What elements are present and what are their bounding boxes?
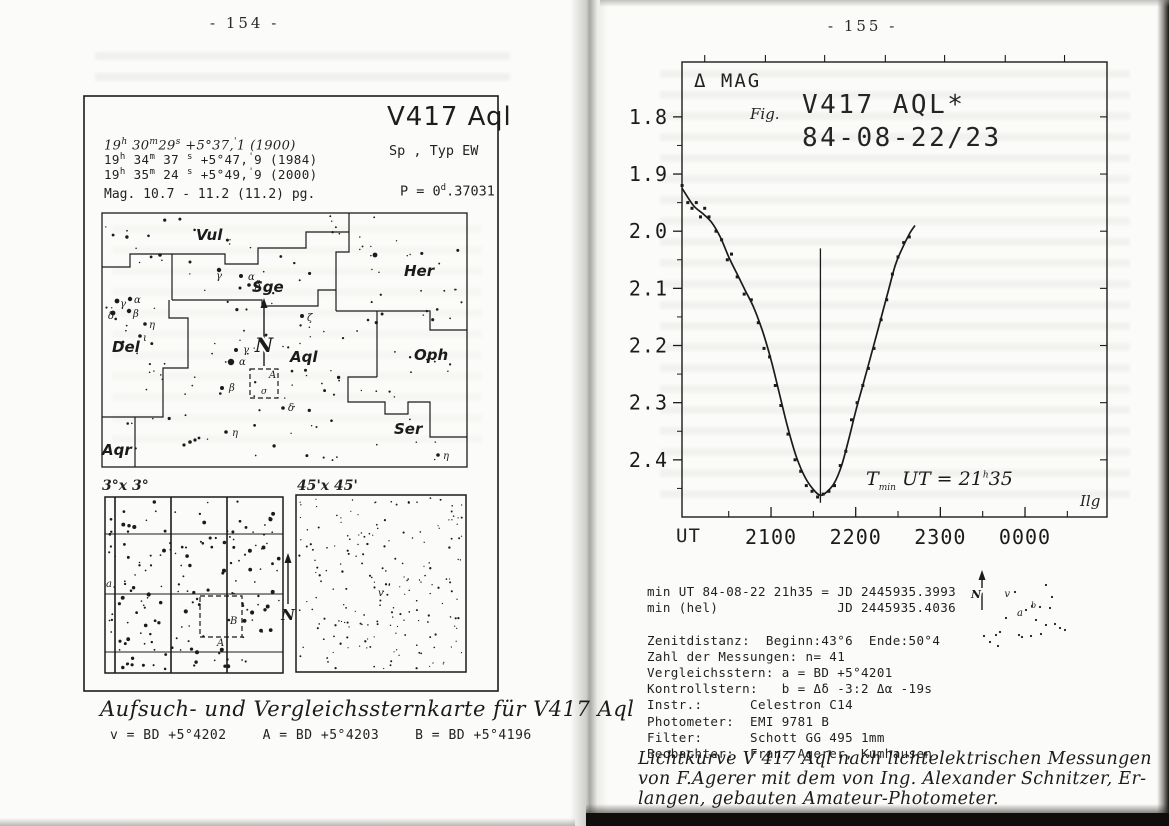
coordinate-line-2: 19h 35m 24 s +5°49,'9 (2000) xyxy=(104,167,318,182)
svg-text:η: η xyxy=(232,428,238,439)
constellation-label-del: Del xyxy=(112,338,141,356)
info-line-4: Zahl der Messungen: n= 41 xyxy=(647,649,956,665)
comparison-star-2: B = BD +5°4196 xyxy=(415,728,532,743)
inset-scale-label-45arcmin: 45'x 45' xyxy=(297,478,358,494)
constellation-label-ser: Ser xyxy=(394,420,424,438)
inset-mark-B: B xyxy=(229,616,237,627)
svg-text:ι: ι xyxy=(143,333,147,344)
constellation-label-oph: Oph xyxy=(414,346,448,364)
y-tick-label-2.0: 2.0 xyxy=(629,219,668,243)
info-line-5: Vergleichsstern: a = BD +5°4201 xyxy=(647,665,956,681)
inset-3deg-field xyxy=(108,500,280,670)
lightcurve-data-points xyxy=(681,184,911,499)
constellation-label-vul: Vul xyxy=(196,226,223,244)
inset-3deg-grid xyxy=(105,497,283,673)
y-tick-label-2.1: 2.1 xyxy=(629,276,668,300)
mini-chart-a-label: a xyxy=(1017,608,1023,619)
y-tick-label-2.4: 2.4 xyxy=(629,448,668,472)
svg-text:γ: γ xyxy=(216,271,222,282)
mini-finder-chart: vab xyxy=(983,584,1066,647)
info-line-9: Filter: Schott GG 495 1mm xyxy=(647,730,956,746)
observation-info-block: min UT 84-08-22 21h35 = JD 2445935.3993m… xyxy=(647,584,956,762)
finder-chart-caption: Aufsuch- und Vergleichssternkarte für V4… xyxy=(100,697,634,721)
lightcurve-fit-curve xyxy=(682,188,915,495)
observer-initials: Ilg xyxy=(1080,492,1100,510)
svg-text:η: η xyxy=(443,451,449,462)
x-tick-label-2100: 2100 xyxy=(745,525,797,549)
svg-text:γ: γ xyxy=(120,299,126,310)
y-tick-label-2.2: 2.2 xyxy=(629,334,668,358)
constellation-label-sge: Sge xyxy=(252,278,284,296)
caption-line-0: Lichtkurve V 417 Aql nach lichtelektrisc… xyxy=(638,750,1152,770)
coordinate-line-1: 19h 34m 37 s +5°47,'9 (1984) xyxy=(104,152,318,167)
info-line-6: Kontrollstern: b = Δδ -3:2 Δα -19s xyxy=(647,681,956,697)
mini-chart-v-label: v xyxy=(1004,589,1010,600)
svg-text:β: β xyxy=(132,309,139,320)
coordinate-line-0: 19h 30m29s +5°37,'1 (1900) xyxy=(104,137,318,152)
comparison-star-0: v = BD +5°4202 xyxy=(110,728,227,743)
spectrum-type-line: Sp , Typ EW xyxy=(389,143,478,159)
period-line: P = 0d.37031 xyxy=(400,183,495,200)
comparison-stars-line: v = BD +5°4202A = BD +5°4203B = BD +5°41… xyxy=(110,728,532,743)
svg-text:δ: δ xyxy=(108,311,114,322)
north-arrow-mini-chart: N xyxy=(970,570,986,610)
dashed-box-sigma-label: σ xyxy=(261,387,268,397)
y-tick-label-2.3: 2.3 xyxy=(629,391,668,415)
info-line-1: min (hel) JD 2445935.4036 xyxy=(647,600,956,616)
svg-text:α: α xyxy=(239,357,246,368)
inset-scale-label-3deg: 3°x 3° xyxy=(102,478,149,494)
inset-mark-A: A xyxy=(216,638,224,649)
north-arrow-main-chart: N xyxy=(254,298,274,366)
dashed-box-a-label: A xyxy=(268,370,276,381)
lightcurve-title: V417 AQL* xyxy=(802,90,965,120)
minimum-time-annotation: Tmin UT = 21h35 xyxy=(866,468,1013,493)
y-tick-label-1.8: 1.8 xyxy=(629,105,668,129)
x-tick-label-2300: 2300 xyxy=(914,525,966,549)
y-axis-title: Δ MAG xyxy=(694,70,761,92)
inset-3deg-border xyxy=(105,497,283,673)
info-line-7: Instr.: Celestron C14 xyxy=(647,697,956,713)
svg-text:N: N xyxy=(254,333,274,357)
info-line-0: min UT 84-08-22 21h35 = JD 2445935.3993 xyxy=(647,584,956,600)
info-line-2 xyxy=(647,616,956,632)
finder-chart-title: V417 Aql xyxy=(387,102,512,132)
constellation-label-aqr: Aqr xyxy=(101,441,133,459)
constellation-label-her: Her xyxy=(404,262,436,280)
magnitude-range-line: Mag. 10.7 - 11.2 (11.2) pg. xyxy=(104,187,315,202)
x-axis-title: UT xyxy=(676,525,701,547)
inset-mark-v: v xyxy=(378,588,384,599)
svg-text:α: α xyxy=(134,295,141,306)
comparison-star-1: A = BD +5°4203 xyxy=(263,728,380,743)
caption-line-1: von F.Agerer mit dem von Ing. Alexander … xyxy=(638,770,1152,790)
inset-mark-a: a xyxy=(106,579,112,590)
svg-text:ζ: ζ xyxy=(307,313,313,324)
figure-label: Fig. xyxy=(750,105,780,123)
svg-text:N: N xyxy=(970,588,982,601)
x-tick-label-0000: 0000 xyxy=(999,525,1051,549)
svg-text:δ: δ xyxy=(288,403,294,414)
mini-chart-b-label: b xyxy=(1031,601,1036,610)
info-line-8: Photometer: EMI 9781 B xyxy=(647,714,956,730)
constellation-label-aql: Aql xyxy=(289,348,318,366)
svg-text:γ: γ xyxy=(243,345,249,356)
lightcurve-caption: Lichtkurve V 417 Aql nach lichtelektrisc… xyxy=(638,750,1152,809)
lightcurve-date: 84-08-22/23 xyxy=(802,123,1002,153)
svg-text:η: η xyxy=(149,320,155,331)
coordinates-block: 19h 30m29s +5°37,'1 (1900)19h 34m 37 s +… xyxy=(104,137,318,182)
inset-45arcmin-border xyxy=(296,495,466,672)
info-line-3: Zenitdistanz: Beginn:43°6 Ende:50°4 xyxy=(647,633,956,649)
y-tick-label-1.9: 1.9 xyxy=(629,162,668,186)
caption-line-2: langen, gebauten Amateur-Photometer. xyxy=(638,790,1152,810)
svg-text:β: β xyxy=(228,383,235,394)
inset-45arcmin-field xyxy=(298,497,462,669)
x-tick-label-2200: 2200 xyxy=(830,525,882,549)
